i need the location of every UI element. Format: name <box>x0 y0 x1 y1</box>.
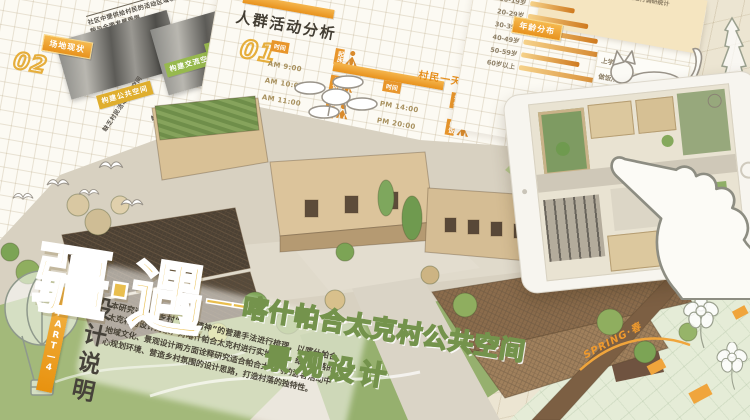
arch <box>491 222 502 236</box>
plan-green-band <box>677 89 731 156</box>
plan-building <box>587 101 634 139</box>
plan-building <box>635 96 676 134</box>
poster-board: 社区中提供给村民的活动区域较少，静态活动空间，村民风貌与全面发展受限 缺乏村民活… <box>0 0 750 420</box>
bird-icon <box>46 176 70 190</box>
poplar <box>402 196 422 240</box>
drone-icon <box>292 72 397 134</box>
pointing-hand-icon <box>608 150 750 300</box>
window <box>345 196 358 213</box>
plan-parking <box>543 194 605 262</box>
tablet-camera-icon <box>522 189 527 194</box>
bird-icon <box>120 196 144 210</box>
bird-icon <box>78 186 100 199</box>
window <box>305 200 318 217</box>
poplar <box>378 180 394 216</box>
bird-icon <box>98 158 124 173</box>
plan-tree <box>661 134 674 147</box>
flower-icon <box>712 342 750 392</box>
tree <box>421 266 439 284</box>
arch <box>468 220 479 234</box>
tree <box>453 293 477 317</box>
arch <box>445 218 456 232</box>
bird-icon <box>12 190 34 203</box>
tree <box>336 243 354 261</box>
